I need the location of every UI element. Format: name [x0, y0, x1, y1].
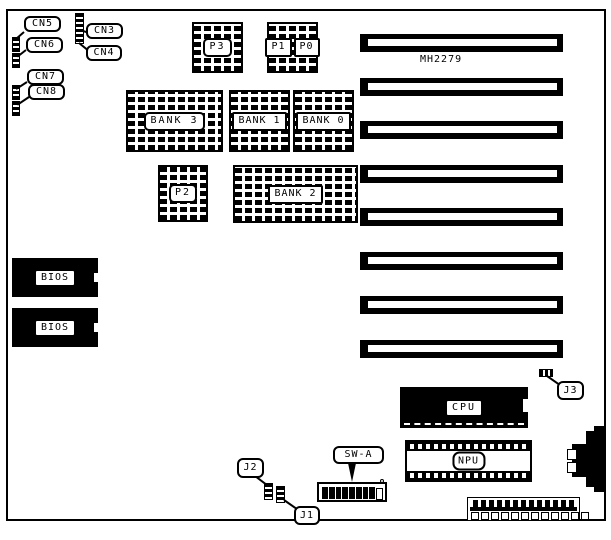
- chip-bank2: BANK 2: [233, 165, 358, 223]
- bios-chip-top: BIOS: [12, 258, 98, 297]
- j3-label: J3: [563, 386, 577, 396]
- cn7-label: CN7: [35, 72, 56, 82]
- npu-socket: NPU: [405, 440, 532, 482]
- j1-label: J1: [300, 511, 314, 521]
- p2-label: P2: [169, 184, 197, 203]
- dip-switch-segment: [336, 487, 342, 499]
- socket-pin-row-bottom: [407, 471, 530, 480]
- connector-sockets: [471, 512, 589, 520]
- expansion-slot: [360, 165, 563, 183]
- slot-opening: [368, 257, 557, 264]
- bank0-label: BANK 0: [296, 112, 350, 131]
- cn8-label: CN8: [36, 87, 57, 97]
- slot-opening: [368, 301, 557, 308]
- din-connector-hole: [567, 449, 577, 460]
- cn5-label: CN5: [32, 19, 53, 29]
- din-connector-step: [594, 486, 605, 492]
- bank3-label: BANK 3: [144, 112, 204, 131]
- callout-cn4: CN4: [86, 45, 122, 61]
- chip-p1-p0: P1 P0: [267, 22, 318, 73]
- chip-bank3: BANK 3: [126, 90, 223, 152]
- dip-switch-segment: [342, 487, 348, 499]
- j2-label: J2: [243, 463, 257, 473]
- slot-opening: [368, 83, 557, 90]
- expansion-slot: [360, 208, 563, 226]
- expansion-slot: [360, 252, 563, 270]
- chip-notch: [94, 323, 100, 332]
- din-connector: [586, 431, 605, 487]
- chip-p2: P2: [158, 165, 208, 222]
- board-model-text: MH2279: [420, 54, 462, 65]
- slot-opening: [368, 170, 557, 177]
- bank1-label: BANK 1: [232, 112, 286, 131]
- callout-cn5: CN5: [24, 16, 61, 32]
- p0-label: P0: [294, 38, 320, 57]
- dip-switch-index-dot: [380, 479, 384, 483]
- dip-switch-segment-off: [376, 488, 383, 500]
- dip-switch-segment: [349, 487, 355, 499]
- dip-switch-segment: [363, 487, 369, 499]
- bios-top-label: BIOS: [35, 270, 75, 286]
- chip-bank0: BANK 0: [293, 90, 354, 152]
- bios-bottom-label: BIOS: [35, 320, 75, 336]
- callout-cn7: CN7: [27, 69, 64, 85]
- expansion-slot: [360, 340, 563, 358]
- expansion-slot: [360, 34, 563, 52]
- sw-a-label: SW-A: [344, 450, 372, 460]
- expansion-slot: [360, 78, 563, 96]
- p1-label: P1: [265, 38, 291, 57]
- npu-label: NPU: [452, 452, 485, 471]
- multi-pin-connector: [467, 497, 580, 521]
- motherboard-diagram: MH2279 CN5 CN6 CN7 CN8 CN3 CN4 P3 P1 P0 …: [0, 0, 611, 540]
- callout-j1: J1: [294, 506, 320, 525]
- chip-p3: P3: [192, 22, 243, 73]
- callout-cn8: CN8: [28, 84, 65, 100]
- cpu-label: CPU: [446, 400, 482, 416]
- dip-switch-segment: [329, 487, 335, 499]
- p3-label: P3: [203, 38, 231, 57]
- slot-opening: [368, 39, 557, 46]
- slot-opening: [368, 126, 557, 133]
- chip-bank1: BANK 1: [229, 90, 290, 152]
- dip-switch-segment: [322, 487, 328, 499]
- cpu-dashed-line: [404, 423, 524, 425]
- dip-switch-segment: [369, 487, 375, 499]
- callout-cn6: CN6: [26, 37, 63, 53]
- cn6-label: CN6: [34, 40, 55, 50]
- cpu-chip: CPU: [400, 387, 528, 428]
- chip-notch: [94, 273, 100, 282]
- din-connector-step: [594, 426, 605, 432]
- callout-cn3: CN3: [86, 23, 123, 39]
- bios-chip-bottom: BIOS: [12, 308, 98, 347]
- slot-opening: [368, 213, 557, 220]
- dip-switch-sw-a: [317, 482, 387, 502]
- callout-sw-a: SW-A: [333, 446, 384, 464]
- expansion-slot: [360, 121, 563, 139]
- dip-switch-segment: [356, 487, 362, 499]
- expansion-slot: [360, 296, 563, 314]
- bank2-label: BANK 2: [268, 185, 322, 204]
- cn3-label: CN3: [94, 26, 115, 36]
- callout-j3: J3: [557, 381, 584, 400]
- din-connector-hole: [567, 462, 577, 473]
- slot-opening: [368, 345, 557, 352]
- callout-j2: J2: [237, 458, 264, 478]
- chip-notch: [523, 399, 529, 412]
- cn4-label: CN4: [93, 48, 114, 58]
- connector-band: [470, 507, 577, 511]
- connector-pins: [473, 500, 574, 507]
- socket-pin-row-top: [407, 442, 530, 451]
- callout-pointer: [348, 463, 356, 482]
